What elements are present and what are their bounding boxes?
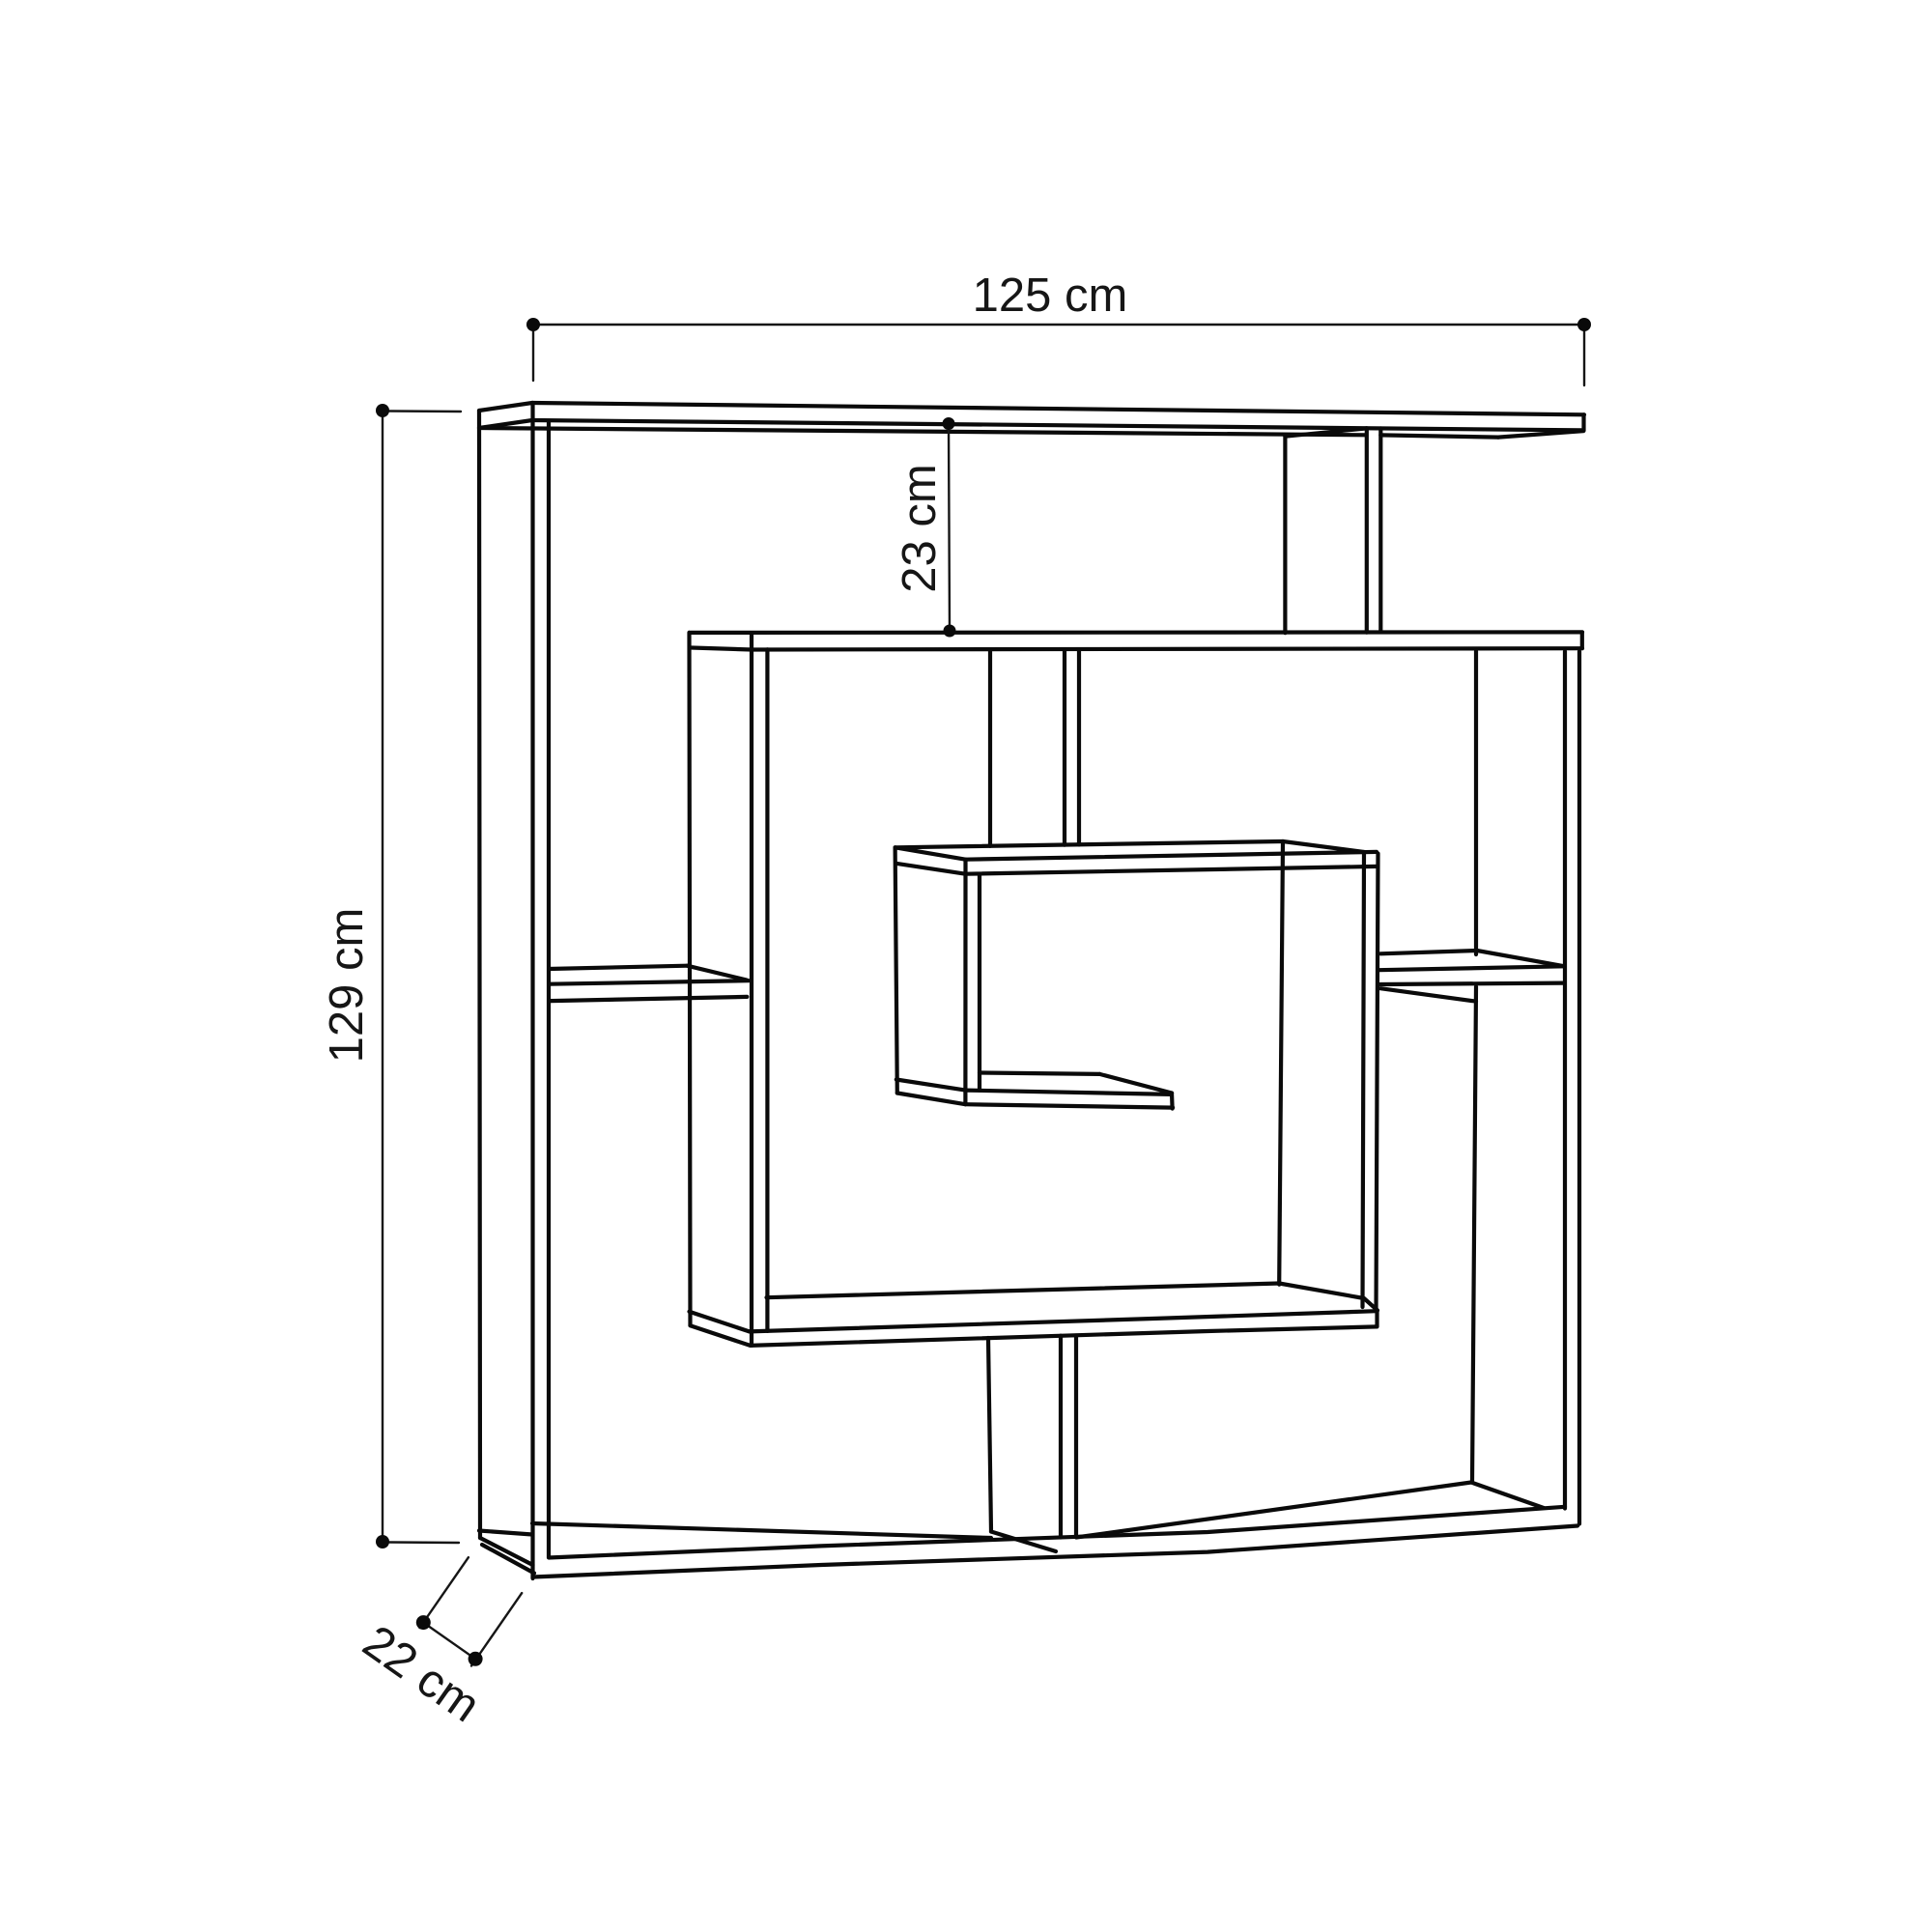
svg-text:125 cm: 125 cm xyxy=(973,270,1128,322)
svg-text:23 cm: 23 cm xyxy=(894,464,946,592)
svg-text:22 cm: 22 cm xyxy=(354,1616,489,1733)
svg-text:129 cm: 129 cm xyxy=(321,908,373,1064)
